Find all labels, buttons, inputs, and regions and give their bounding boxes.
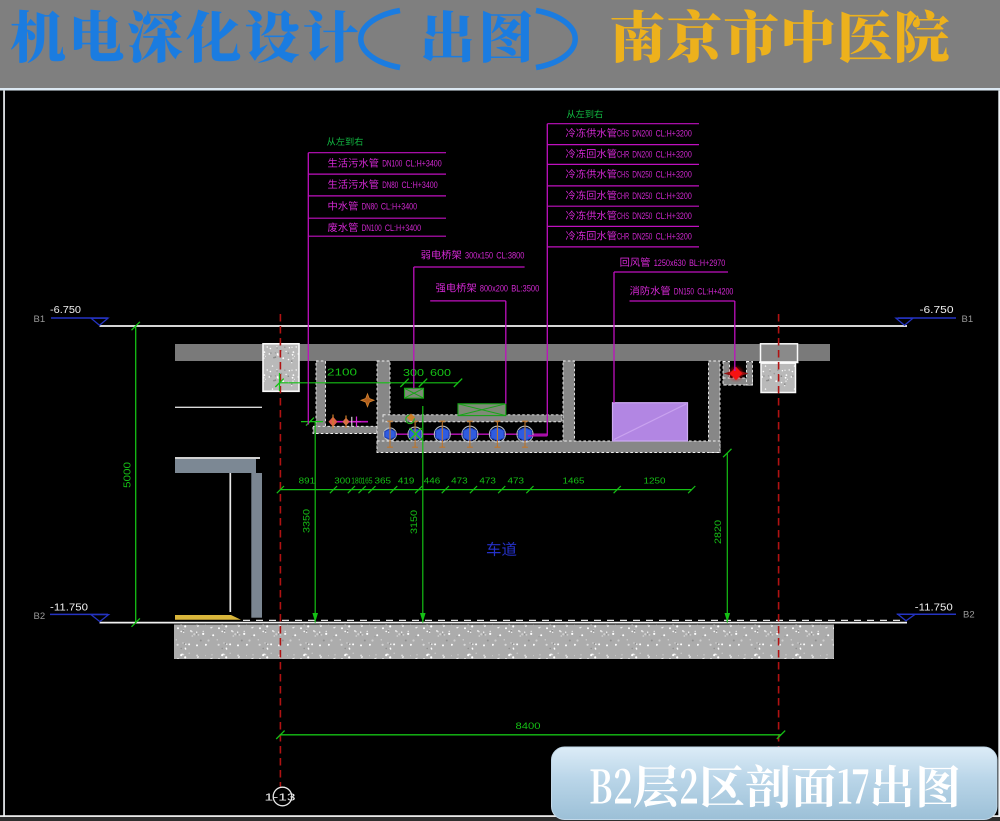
- svg-text:B1: B1: [962, 314, 974, 325]
- svg-text:B1: B1: [34, 314, 46, 325]
- svg-text:B2: B2: [963, 610, 975, 621]
- svg-text:CL:H+3400: CL:H+3400: [381, 202, 417, 212]
- svg-text:-11.750: -11.750: [915, 603, 953, 614]
- svg-text:5000: 5000: [122, 462, 134, 488]
- svg-text:DN100: DN100: [382, 159, 402, 169]
- svg-text:-11.750: -11.750: [50, 603, 88, 614]
- svg-text:3150: 3150: [409, 510, 420, 534]
- svg-text:CL:H+3200: CL:H+3200: [656, 211, 692, 221]
- svg-text:-6.750: -6.750: [50, 305, 81, 316]
- svg-text:CHS: CHS: [617, 129, 629, 139]
- svg-text:CHR: CHR: [617, 231, 629, 241]
- svg-text:BL:3500: BL:3500: [511, 284, 539, 294]
- svg-text:CL:H+3400: CL:H+3400: [402, 180, 438, 190]
- svg-text:CL:H+3400: CL:H+3400: [406, 159, 442, 169]
- svg-text:1465: 1465: [563, 476, 585, 486]
- svg-text:DN200: DN200: [632, 149, 652, 159]
- svg-text:473: 473: [479, 476, 496, 486]
- svg-text:CL:H+3200: CL:H+3200: [656, 191, 692, 201]
- svg-text:CL:H+3400: CL:H+3400: [385, 223, 421, 233]
- svg-text:300x150: 300x150: [465, 251, 493, 261]
- svg-text:BL:H+2970: BL:H+2970: [689, 258, 725, 268]
- svg-text:CL:H+3200: CL:H+3200: [656, 129, 692, 139]
- svg-text:300: 300: [334, 476, 350, 486]
- svg-text:600: 600: [430, 368, 452, 379]
- svg-text:DN250: DN250: [632, 170, 652, 180]
- svg-text:CL:H+3200: CL:H+3200: [656, 170, 692, 180]
- svg-text:DN250: DN250: [632, 231, 652, 241]
- svg-text:CHR: CHR: [617, 149, 629, 159]
- svg-text:8400: 8400: [516, 721, 541, 732]
- svg-text:CHS: CHS: [617, 170, 629, 180]
- svg-text:DN150: DN150: [674, 286, 694, 296]
- svg-text:1-13: 1-13: [265, 792, 296, 804]
- svg-text:1250x630: 1250x630: [654, 258, 686, 268]
- svg-text:B2: B2: [34, 611, 46, 622]
- svg-text:DN250: DN250: [632, 211, 652, 221]
- svg-text:473: 473: [451, 476, 468, 486]
- svg-text:CL:H+3200: CL:H+3200: [656, 149, 692, 159]
- svg-text:473: 473: [508, 476, 525, 486]
- svg-text:DN100: DN100: [362, 223, 382, 233]
- svg-text:365: 365: [375, 476, 392, 486]
- svg-text:CL:3800: CL:3800: [496, 251, 524, 261]
- svg-text:DN250: DN250: [632, 191, 652, 201]
- svg-text:2820: 2820: [713, 520, 724, 544]
- svg-text:DN80: DN80: [362, 202, 378, 212]
- svg-text:DN80: DN80: [382, 180, 398, 190]
- svg-text:891: 891: [299, 476, 316, 486]
- svg-text:-6.750: -6.750: [920, 305, 955, 316]
- svg-text:CHS: CHS: [617, 211, 629, 221]
- svg-text:CL:H+4200: CL:H+4200: [697, 286, 733, 296]
- svg-text:800x200: 800x200: [480, 284, 508, 294]
- svg-text:CHR: CHR: [617, 191, 629, 201]
- svg-text:2100: 2100: [327, 368, 358, 379]
- svg-text:1250: 1250: [644, 476, 666, 486]
- svg-text:446: 446: [424, 476, 441, 486]
- svg-text:3350: 3350: [302, 509, 313, 533]
- svg-text:165: 165: [362, 476, 373, 486]
- svg-text:CL:H+3200: CL:H+3200: [656, 231, 692, 241]
- svg-text:DN200: DN200: [632, 129, 652, 139]
- svg-text:419: 419: [398, 476, 415, 486]
